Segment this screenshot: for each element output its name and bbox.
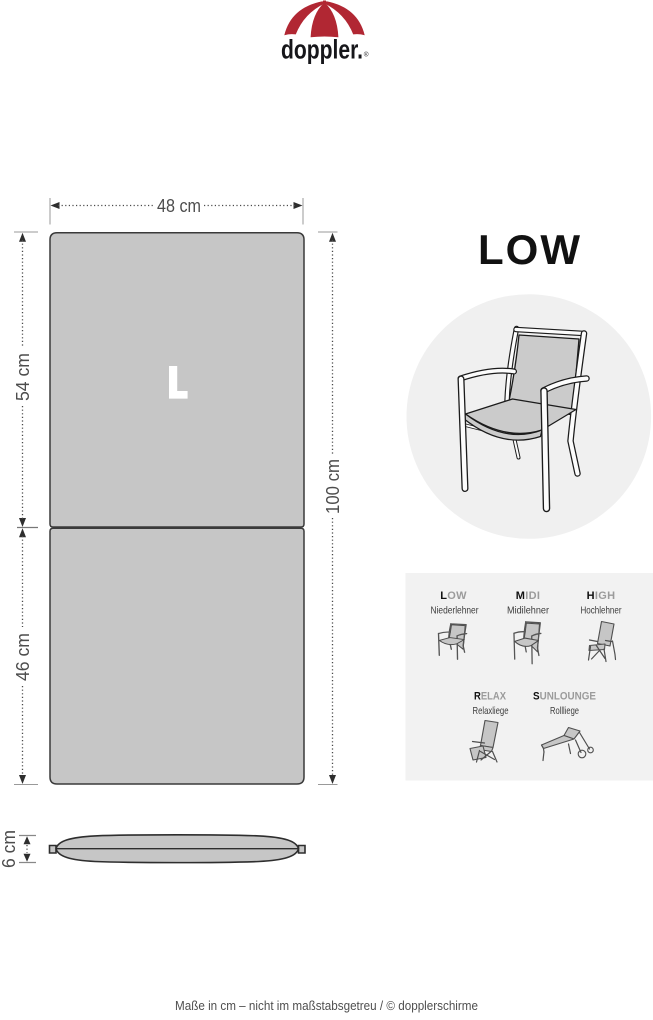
svg-text:46 cm: 46 cm: [12, 633, 33, 681]
svg-text:54 cm: 54 cm: [12, 353, 33, 401]
svg-text:Relaxliege: Relaxliege: [473, 705, 509, 717]
svg-text:100 cm: 100 cm: [322, 459, 343, 514]
svg-text:6 cm: 6 cm: [0, 830, 19, 868]
svg-text:Midilehner: Midilehner: [507, 605, 549, 617]
svg-text:SUNLOUNGE: SUNLOUNGE: [533, 691, 596, 703]
svg-text:Hochlehner: Hochlehner: [581, 605, 622, 617]
svg-text:LOW: LOW: [440, 590, 467, 602]
svg-text:doppler.: doppler.: [281, 35, 363, 65]
svg-text:48 cm: 48 cm: [157, 195, 201, 216]
svg-text:LOW: LOW: [478, 226, 582, 273]
svg-text:Maße in cm – nicht im maßstabs: Maße in cm – nicht im maßstabsgetreu / ©…: [175, 999, 478, 1013]
svg-text:Rollliege: Rollliege: [550, 705, 579, 717]
svg-text:RELAX: RELAX: [474, 691, 507, 703]
svg-text:Niederlehner: Niederlehner: [431, 605, 479, 617]
svg-text:MIDI: MIDI: [516, 590, 540, 602]
svg-text:®: ®: [364, 51, 369, 59]
svg-text:HIGH: HIGH: [587, 590, 616, 602]
